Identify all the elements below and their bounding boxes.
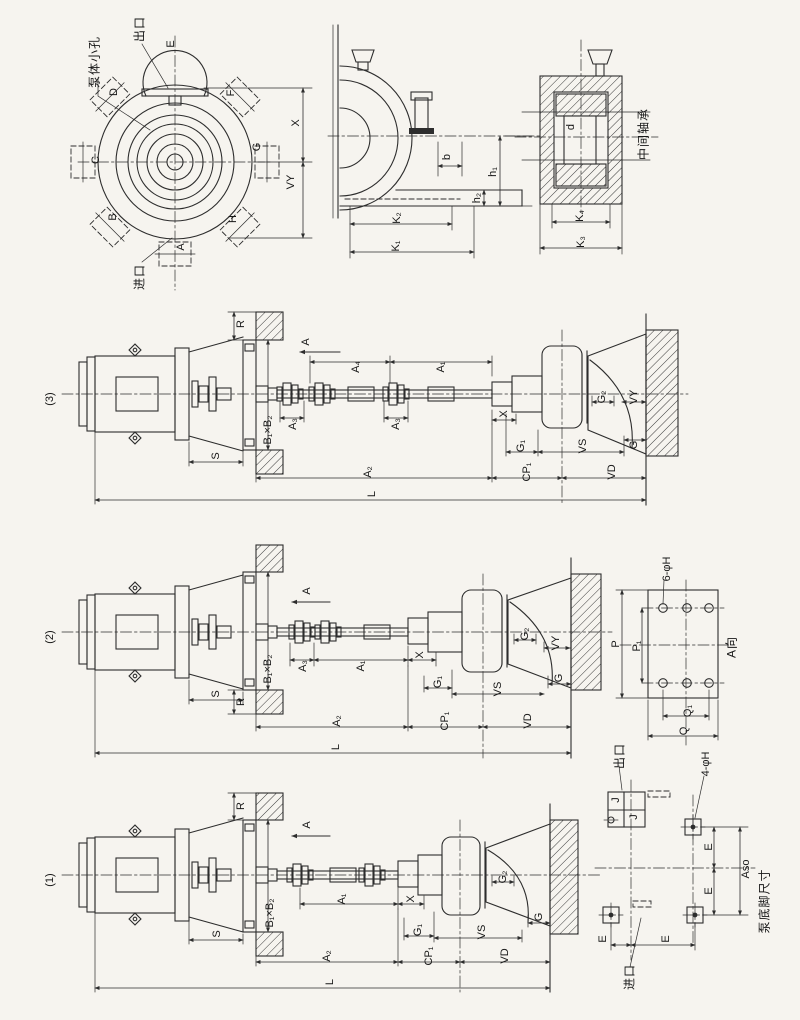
s2-dim-x: X [414,651,426,658]
s3-dim-b1b2: B₁×B₂ [262,415,274,444]
base-dim-j1: J [628,814,640,820]
flange-view-title: A向 [723,636,740,658]
side-view [328,25,540,258]
pump-installation-drawing: 泵体小孔 出口 进口 E D F C G B H A X VY b h₁ h₂ … [0,0,800,1020]
s3-dim-a3b: A₃ [390,418,402,430]
port-label-b: B [107,213,119,220]
side-dim-h2: h₂ [471,193,483,203]
flange-dim-p1: P₁ [631,640,643,651]
s1-dim-a1: A₁ [336,893,348,904]
bearing-title: 中间轴承 [635,108,652,160]
flange-dim-q: Q [678,727,690,736]
side-dim-k2: K₂ [391,212,403,224]
bearing-dim-k3: K₃ [575,236,587,248]
front-dim-x: X [290,119,302,126]
s2-dim-g: G [553,674,565,683]
section-1 [62,793,600,992]
port-label-h: H [227,215,239,223]
s3-view-arrow-a: A [300,338,312,345]
base-dim-j: J [610,797,622,803]
s1-dim-b1b2: B₁×B₂ [264,898,276,927]
s3-dim-a1: A₁ [435,361,447,372]
s1-dim-a2: A₂ [321,950,333,962]
s1-dim-vs: VS [476,925,488,940]
front-view [71,36,312,290]
section-2-id: (2) [44,630,56,643]
s2-dim-g2: G₂ [519,628,531,641]
s2-dim-b1b2: B₁×B₂ [262,654,274,683]
port-label-a: A [175,243,187,250]
front-inlet-label: 进口 [131,264,148,290]
s3-dim-vy: VY [628,390,640,405]
s3-dim-g: G [628,441,640,450]
s3-dim-vd: VD [606,464,618,479]
port-label-f: F [225,90,237,97]
s3-dim-g2: G₂ [596,391,608,404]
s2-dim-cp1: CP₁ [439,712,451,731]
port-label-g: G [251,143,263,152]
flange-dim-p: P [610,640,622,647]
s2-view-arrow-a: A [301,587,313,594]
s3-dim-r: R [235,320,247,328]
s2-dim-l: L [330,744,342,750]
flange-dim-q1: Q₁ [682,705,694,717]
s3-dim-cp1: CP₁ [521,463,533,482]
s3-dim-x: X [498,410,510,417]
s1-dim-l: L [324,979,336,985]
s1-dim-vd: VD [499,948,511,963]
base-holes-note: 4-φH [700,752,712,777]
s2-dim-a2: A₂ [331,715,343,727]
base-dim-e-bottom-left: E [597,935,609,942]
s2-dim-a1: A₁ [355,660,367,671]
base-view [595,766,755,967]
section-3-id: (3) [44,392,56,405]
bearing-dim-d: d [565,124,577,130]
base-dim-e-top: E [703,843,715,850]
s3-dim-g1: G₁ [515,440,527,452]
s2-dim-s: S [210,690,222,697]
bearing-dim-k4: K₄ [574,210,586,222]
flange-holes-note: 6-φH [661,557,673,582]
s2-dim-r: R [235,698,247,706]
s1-dim-r: R [235,802,247,810]
drawing-linework [0,0,800,1020]
front-small-hole-note: 泵体小孔 [86,36,103,88]
flange-view [616,580,730,745]
s1-dim-cp1: CP₁ [423,947,435,966]
section-1-id: (1) [44,873,56,886]
base-dim-aso: Aso [740,860,752,879]
port-label-e: E [165,40,177,47]
s3-dim-a2: A₂ [362,466,374,478]
port-label-d: D [108,88,120,96]
s2-dim-g1: G₁ [432,676,444,688]
front-outlet-label: 出口 [131,16,148,42]
s2-dim-vs: VS [492,682,504,697]
s1-dim-s: S [211,930,223,937]
s3-dim-s: S [210,452,222,459]
side-dim-h1: h₁ [487,167,499,177]
s3-dim-a3a: A₃ [287,418,299,430]
s3-dim-l: L [366,491,378,497]
front-dim-vy: VY [285,175,297,190]
side-dim-k1: K₁ [390,240,402,251]
base-inlet-label: 进口 [621,964,638,990]
base-dim-e-bottom-right: E [660,935,672,942]
base-dim-e-mid: E [703,887,715,894]
section-3 [62,312,688,505]
base-outlet-label: 出口 [611,743,628,769]
side-dim-b: b [441,154,453,160]
s1-dim-g: G [533,913,545,922]
s2-dim-a3: A₃ [297,660,309,672]
base-view-title: 泵底脚尺寸 [756,868,773,933]
s1-view-arrow-a: A [301,821,313,828]
port-label-c: C [90,156,102,164]
s3-dim-vs: VS [577,439,589,454]
s1-dim-g2: G₂ [497,871,509,884]
s2-dim-vd: VD [522,713,534,728]
s3-dim-a4: A₄ [350,361,362,373]
s1-dim-x: X [405,895,417,902]
s2-dim-vy: VY [550,636,562,651]
s1-dim-g1: G₁ [412,924,424,936]
